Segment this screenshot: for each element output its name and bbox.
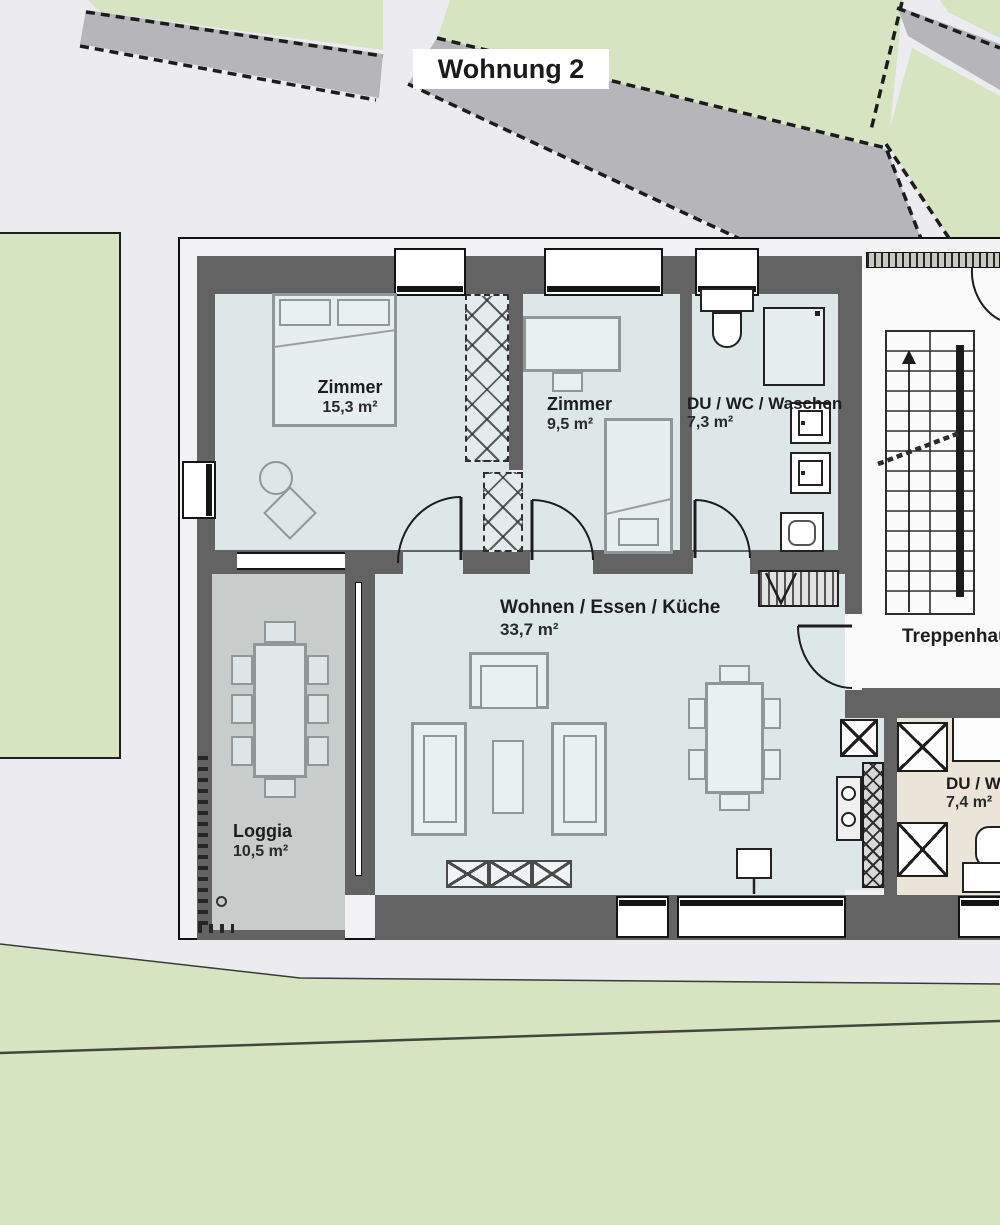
room-label-loggia: Loggia 10,5 m² [233, 821, 292, 861]
door-bath [695, 500, 750, 558]
door-zimmer2 [532, 500, 593, 560]
plan-title-box: Wohnung 2 [413, 49, 609, 89]
room-area: 9,5 m² [547, 416, 612, 434]
room-label-stairwell: Treppenhaus [902, 626, 1000, 649]
room-name: DU / WC / Waschen [687, 394, 842, 414]
room-area: 33,7 m² [500, 620, 720, 640]
room-name: Zimmer [288, 377, 412, 399]
room-name: Loggia [233, 821, 292, 843]
room-label-bath: DU / WC / Waschen 7,3 m² [687, 394, 842, 432]
coat-closet-hanger [766, 573, 796, 603]
room-name: DU / WC [946, 774, 1000, 794]
door-apartment-entry [798, 626, 852, 688]
door-zimmer1 [398, 497, 461, 563]
plan-title: Wohnung 2 [438, 53, 584, 85]
staircase [878, 331, 974, 614]
room-area: 7,3 m² [687, 414, 842, 432]
floor-plan-canvas: Wohnung 2 Zimmer 15,3 m² Zimmer 9,5 m² D… [0, 0, 1000, 1225]
room-label-zimmer2: Zimmer 9,5 m² [547, 394, 612, 434]
stair-handrail [956, 345, 964, 597]
room-label-bath2: DU / WC 7,4 m² [946, 774, 1000, 812]
room-area: 15,3 m² [288, 399, 412, 417]
room-area: 10,5 m² [233, 843, 292, 861]
door-building-entrance [972, 268, 1000, 320]
room-name: Zimmer [547, 394, 612, 416]
room-area: 7,4 m² [946, 794, 1000, 812]
room-label-living: Wohnen / Essen / Küche 33,7 m² [500, 597, 720, 640]
room-name: Wohnen / Essen / Küche [500, 597, 720, 620]
room-label-zimmer1: Zimmer 15,3 m² [288, 377, 412, 417]
